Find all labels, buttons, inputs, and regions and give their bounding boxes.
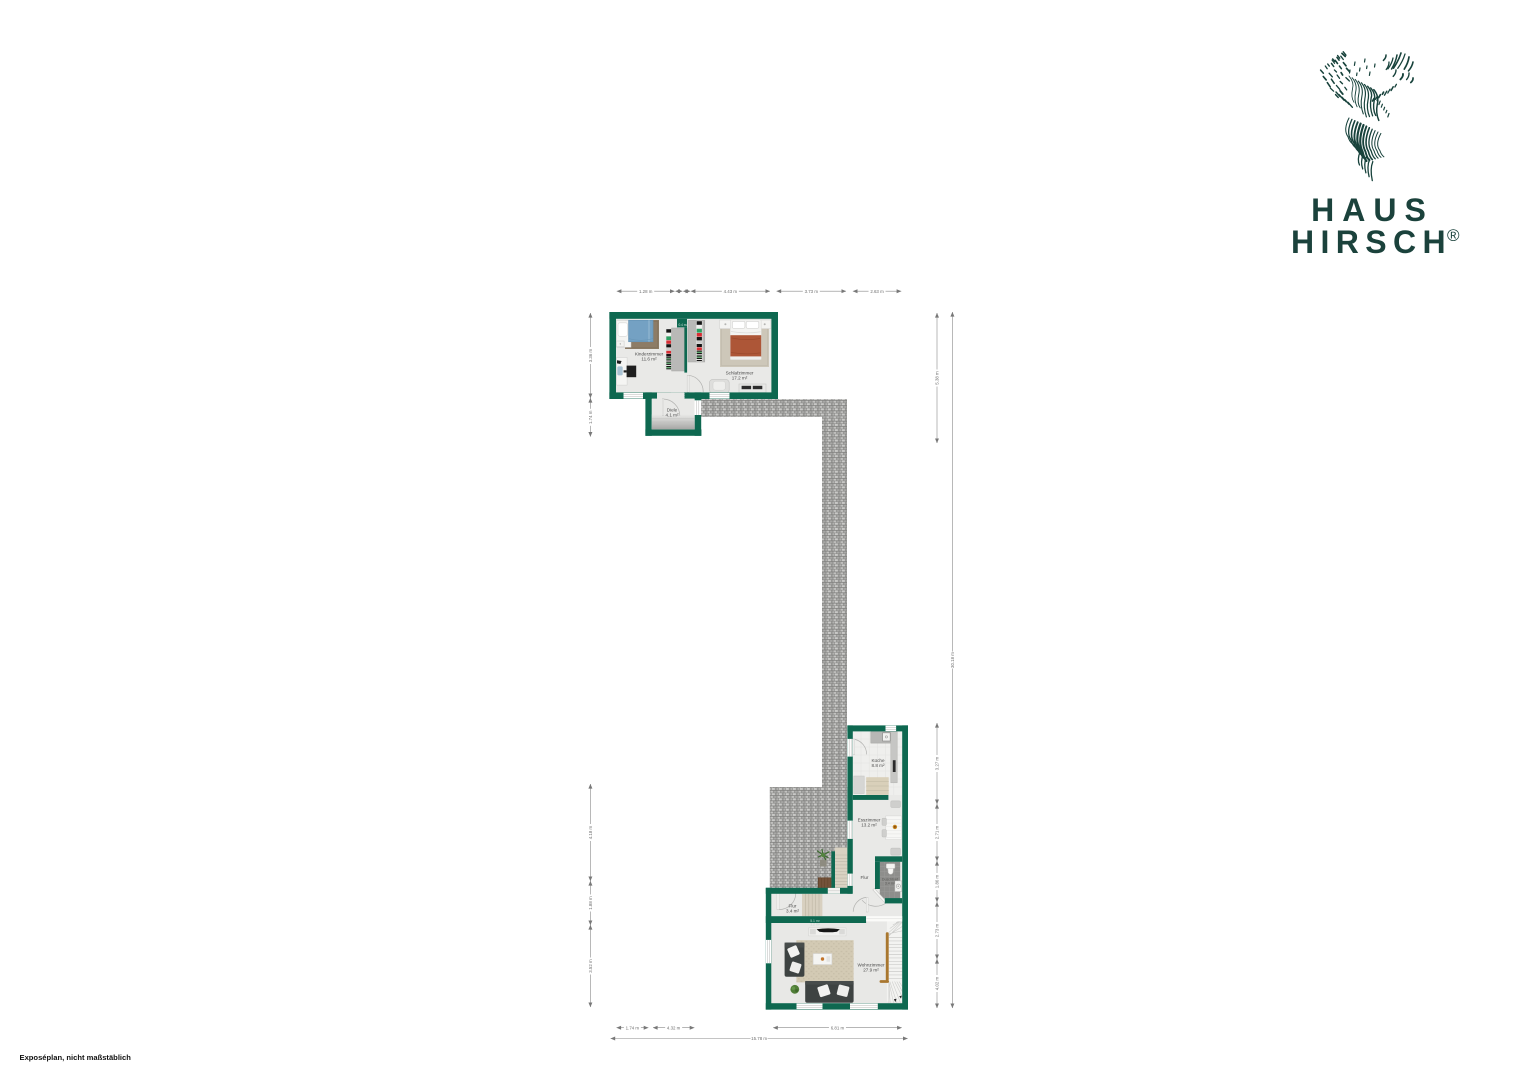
svg-text:17.2 m²: 17.2 m²: [732, 376, 748, 381]
svg-text:4.18 m: 4.18 m: [588, 825, 593, 839]
svg-text:1.2 m²: 1.2 m²: [810, 923, 820, 927]
svg-text:3.4 m²: 3.4 m²: [885, 882, 896, 886]
svg-text:3.52 m: 3.52 m: [588, 959, 593, 973]
svg-text:1.28 m: 1.28 m: [639, 289, 653, 294]
svg-text:13.2 m²: 13.2 m²: [861, 823, 877, 828]
svg-text:HAUS: HAUS: [1311, 192, 1434, 228]
svg-text:30.18 m: 30.18 m: [950, 652, 955, 668]
svg-text:3.4 m²: 3.4 m²: [786, 908, 799, 913]
svg-text:15.78 m: 15.78 m: [751, 1036, 767, 1041]
svg-text:4.1 m²: 4.1 m²: [665, 413, 678, 418]
svg-text:®: ®: [1447, 226, 1460, 245]
svg-text:8.8 m²: 8.8 m²: [871, 763, 884, 768]
svg-text:1.88 m: 1.88 m: [588, 896, 593, 910]
svg-text:HIRSCH: HIRSCH: [1291, 224, 1452, 260]
svg-text:2.63 m: 2.63 m: [870, 289, 884, 294]
svg-text:2.73 m: 2.73 m: [935, 923, 940, 937]
svg-text:5.38 m: 5.38 m: [935, 371, 940, 385]
svg-text:6.81 m: 6.81 m: [831, 1025, 845, 1030]
svg-text:0.4 m²: 0.4 m²: [678, 323, 687, 327]
svg-text:4.02 m: 4.02 m: [935, 976, 940, 990]
svg-text:1.74 m: 1.74 m: [588, 410, 593, 424]
svg-text:27.9 m²: 27.9 m²: [863, 968, 879, 973]
svg-text:Flur: Flur: [861, 875, 869, 880]
svg-text:3.27 m: 3.27 m: [935, 756, 940, 770]
svg-text:3.73 m: 3.73 m: [805, 289, 819, 294]
svg-text:2.71 m: 2.71 m: [935, 825, 940, 839]
svg-text:1.86 m: 1.86 m: [935, 874, 940, 888]
svg-text:1.74 m: 1.74 m: [626, 1025, 640, 1030]
svg-text:11.6 m²: 11.6 m²: [641, 357, 657, 362]
svg-text:4.43 m: 4.43 m: [724, 289, 738, 294]
svg-text:Exposéplan, nicht maßstäblich: Exposéplan, nicht maßstäblich: [20, 1053, 132, 1062]
svg-text:3.36 m: 3.36 m: [588, 348, 593, 362]
svg-text:4.32 m: 4.32 m: [667, 1025, 681, 1030]
